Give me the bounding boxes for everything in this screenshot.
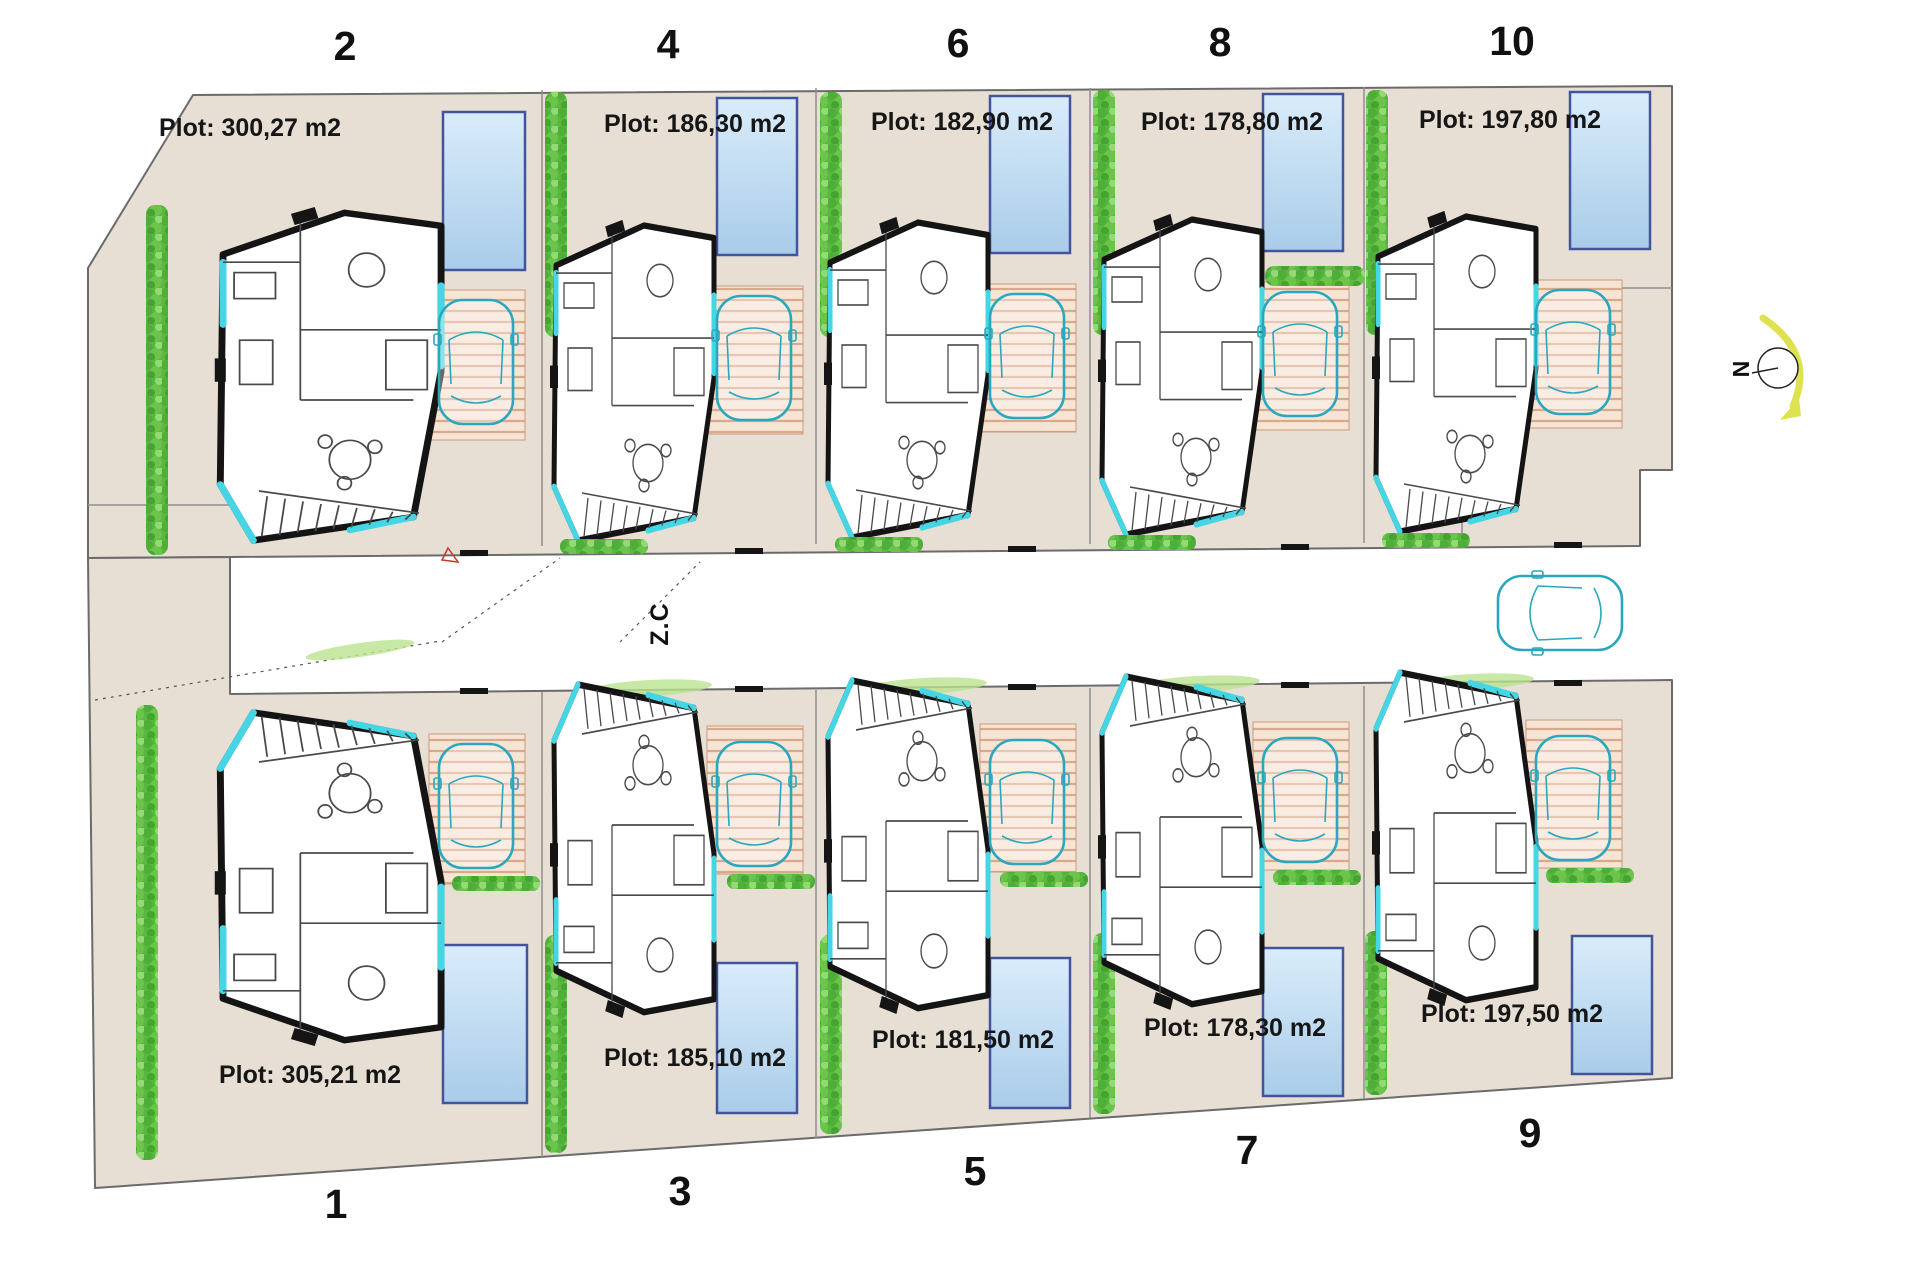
plot-number: 5 [964,1148,987,1194]
plot-number: 2 [334,23,357,69]
driveway-mark [1008,546,1036,552]
driveway-mark [460,550,488,556]
north-indicator: N [1728,318,1801,420]
driveway-mark [1281,544,1309,550]
site-plan-canvas: Plot: 300,27 m2 2 Plot: 186,30 m2 4 Plot… [0,0,1920,1280]
plot-area-label: Plot: 185,10 m2 [604,1044,786,1072]
plot-area-label: Plot: 186,30 m2 [604,110,786,138]
driveway-mark [1554,542,1582,548]
street-car-icon [1498,571,1622,655]
car-icon [712,742,796,866]
driveway-mark [1008,684,1036,690]
house-floorplan [215,713,441,1046]
street-hedge [835,537,923,552]
plot-area-label: Plot: 182,90 m2 [871,108,1053,136]
hedge [146,205,168,555]
house-floorplan [1098,677,1262,1010]
plot-area-label: Plot: 178,30 m2 [1144,1014,1326,1042]
car-icon [712,296,796,420]
car-icon [434,300,518,424]
hedge [1000,872,1088,887]
plot-number: 6 [947,20,970,66]
grass-strip [305,635,416,664]
pool [443,945,527,1103]
plot-number: 9 [1519,1110,1542,1156]
hedge [136,705,158,1160]
pool [443,112,525,270]
plot-number: 10 [1489,18,1535,64]
driveway-mark [460,688,488,694]
house-floorplan [215,207,441,540]
hedge [452,876,540,891]
car-icon [1531,290,1615,414]
hedge [1273,870,1361,885]
plot-number: 8 [1209,19,1232,65]
hedge [1265,266,1365,286]
house-floorplan [550,220,714,541]
plot-area-label: Plot: 197,50 m2 [1421,1000,1603,1028]
house-floorplan [824,217,988,538]
hedge [1546,868,1634,883]
car-icon [1258,738,1342,862]
plot-number: 4 [657,21,680,67]
driveway-mark [735,548,763,554]
house-floorplan [1372,673,1536,1006]
car-icon [985,294,1069,418]
house-floorplan [824,681,988,1014]
north-arrowhead-icon [1780,398,1801,420]
house-floorplan [550,685,714,1018]
street-hedge [1382,533,1470,548]
plot-number: 3 [669,1168,692,1214]
car-icon [434,744,518,868]
north-label: N [1728,361,1754,378]
street-hedge [1108,535,1196,550]
car-icon [985,740,1069,864]
plot-area-label: Plot: 178,80 m2 [1141,108,1323,136]
street-hedge [560,539,648,554]
house-floorplan [1372,211,1536,532]
driveway-mark [1281,682,1309,688]
plot-area-label: Plot: 197,80 m2 [1419,106,1601,134]
driveway-mark [1554,680,1582,686]
pool [717,963,797,1113]
plot-area-label: Plot: 300,27 m2 [159,114,341,142]
driveway-mark [735,686,763,692]
car-icon [1258,292,1342,416]
car-icon [1531,736,1615,860]
plot-number: 1 [325,1181,348,1227]
plot-number: 7 [1236,1127,1259,1173]
house-floorplan [1098,214,1262,535]
hedge [727,874,815,889]
street-label: Z.C [646,602,674,645]
plot-area-label: Plot: 181,50 m2 [872,1026,1054,1054]
plot-area-label: Plot: 305,21 m2 [219,1061,401,1089]
